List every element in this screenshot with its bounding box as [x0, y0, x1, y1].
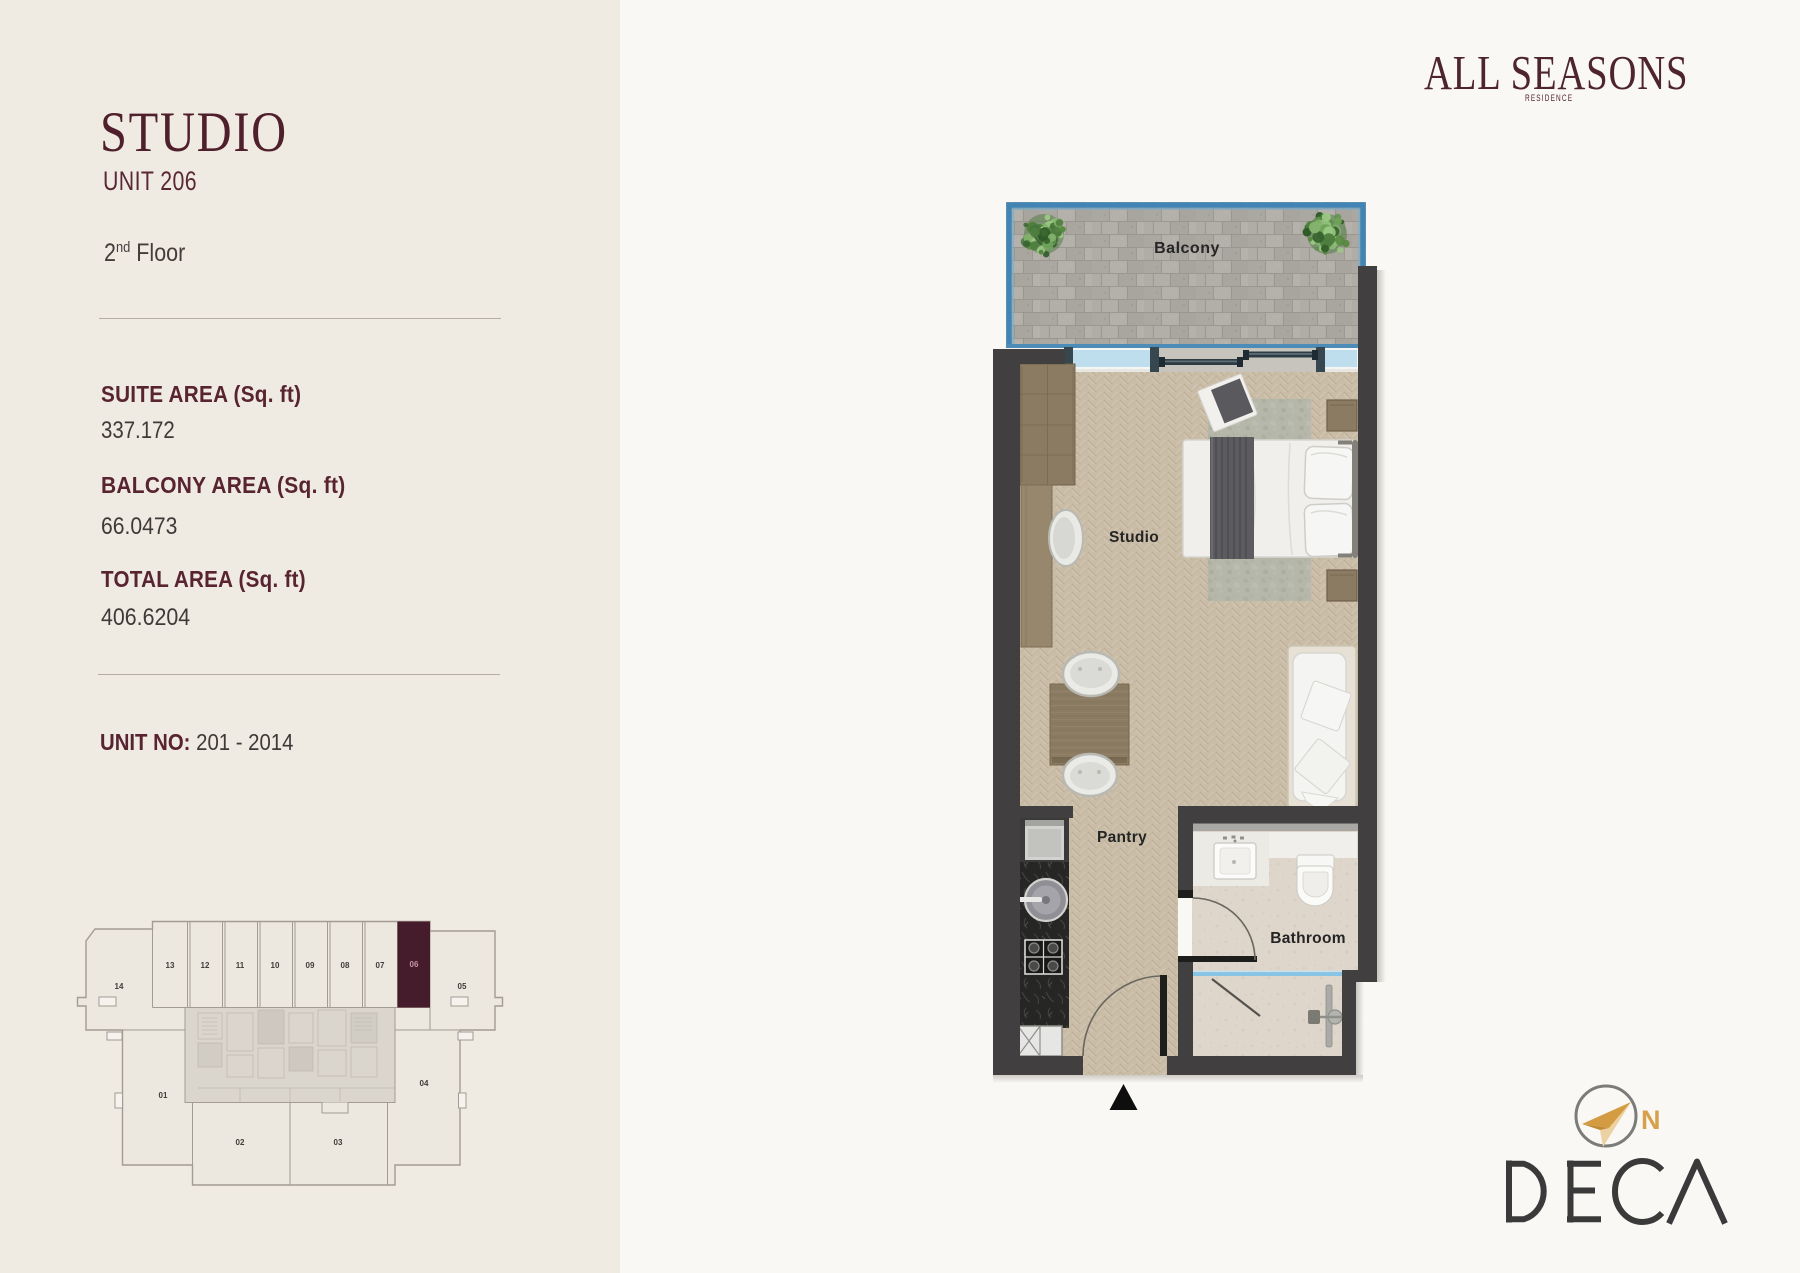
svg-text:12: 12 — [201, 961, 210, 970]
svg-text:02: 02 — [236, 1138, 245, 1147]
svg-text:06: 06 — [410, 960, 419, 969]
svg-text:Studio: Studio — [1109, 529, 1159, 546]
svg-text:01: 01 — [159, 1091, 168, 1100]
svg-text:14: 14 — [115, 982, 124, 991]
svg-text:05: 05 — [458, 982, 467, 991]
svg-text:N: N — [1641, 1105, 1661, 1135]
svg-text:11: 11 — [236, 961, 245, 970]
svg-text:03: 03 — [334, 1138, 343, 1147]
svg-text:04: 04 — [420, 1079, 429, 1088]
svg-text:07: 07 — [376, 961, 385, 970]
svg-text:09: 09 — [306, 961, 315, 970]
svg-text:10: 10 — [271, 961, 280, 970]
svg-text:Bathroom: Bathroom — [1270, 930, 1346, 947]
svg-text:Balcony: Balcony — [1154, 240, 1220, 257]
svg-text:08: 08 — [341, 961, 350, 970]
svg-text:Pantry: Pantry — [1097, 829, 1147, 846]
svg-text:13: 13 — [166, 961, 175, 970]
